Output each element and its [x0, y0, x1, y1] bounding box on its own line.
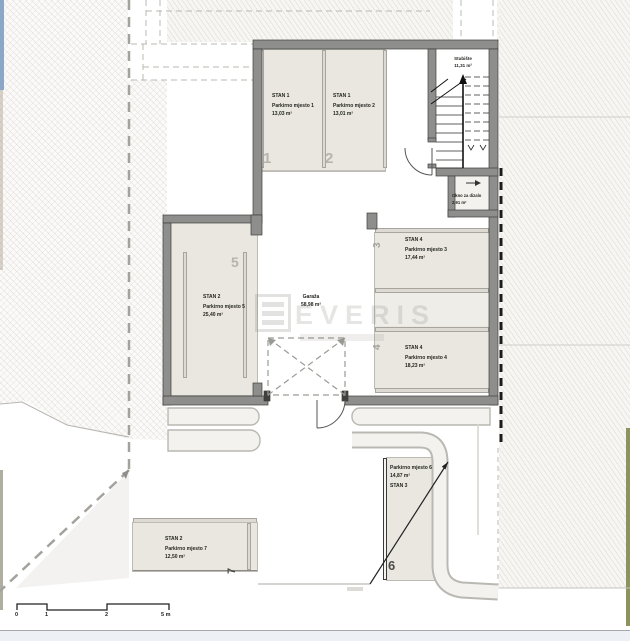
spot-area: 12,50 m² [165, 553, 207, 561]
everis-logo-icon [255, 294, 291, 332]
unit-name: STAN 4 [405, 344, 447, 352]
staircase-label: Stubište 11,31 m² [436, 55, 490, 69]
stall-number-5: 5 [231, 254, 239, 270]
spot-area: 17,44 m² [405, 254, 447, 262]
stall-number-2: 2 [325, 150, 333, 167]
garage-floor-plan: STAN 1 Parkirno mjesto 1 13,03 m² STAN 1… [0, 0, 630, 641]
elevator-arrow-icon [466, 180, 481, 186]
room-name: Stubište [436, 55, 490, 62]
scale-label-0: 0 [15, 612, 18, 618]
spot-name: Parkirno mjesto 2 [333, 102, 375, 110]
unit-name: STAN 3 [390, 482, 432, 490]
driveway-retaining-walls [168, 408, 498, 592]
room-area: 11,31 m² [436, 62, 490, 69]
unit-name: STAN 1 [333, 92, 375, 100]
spot-name: Parkirno mjesto 1 [272, 102, 314, 110]
stall-number-1: 1 [263, 150, 271, 167]
room-name: Okno za dizalo [452, 192, 481, 199]
scale-label-5m: 5 m [161, 612, 170, 618]
watermark-brand: EVERIS [295, 300, 436, 331]
elevator-label: Okno za dizalo 2,91 m² [452, 192, 481, 206]
garage-door-opening [268, 338, 345, 395]
right-region-division-lines [499, 117, 630, 588]
parking-3-label: STAN 4 Parkirno mjesto 3 17,44 m² [405, 236, 447, 262]
spot-area: 13,03 m² [272, 110, 314, 118]
scale-label-2: 2 [105, 612, 108, 618]
spot-name: Parkirno mjesto 4 [405, 354, 447, 362]
spot-name: Parkirno mjesto 6 [390, 464, 432, 472]
spot-name: Parkirno mjesto 3 [405, 246, 447, 254]
scale-label-1: 1 [45, 612, 48, 618]
room-area: 2,91 m² [452, 199, 481, 206]
spot-name: Parkirno mjesto 5 [203, 303, 245, 311]
page-bottom-strip [0, 630, 630, 641]
unit-name: STAN 4 [405, 236, 447, 244]
parking-1-label: STAN 1 Parkirno mjesto 1 13,03 m² [272, 92, 314, 118]
parking-7-label: STAN 2 Parkirno mjesto 7 12,50 m² [165, 535, 207, 561]
spot-area: 25,40 m² [203, 311, 245, 319]
scale-bar [17, 604, 169, 610]
stall-number-6: 6 [388, 558, 395, 573]
unit-name: STAN 2 [165, 535, 207, 543]
parking-2-label: STAN 1 Parkirno mjesto 2 13,01 m² [333, 92, 375, 118]
illegible-annotation [347, 587, 363, 591]
spot-name: Parkirno mjesto 7 [165, 545, 207, 553]
watermark-subtext [300, 334, 384, 341]
doors [317, 148, 432, 428]
stall-number-7: 7 [226, 560, 240, 574]
spot-area: 13,01 m² [333, 110, 375, 118]
parking-6-label: Parkirno mjesto 6 14,87 m² STAN 3 [390, 464, 432, 490]
spot-area: 18,23 m² [405, 362, 447, 370]
property-boundary-lines [0, 0, 129, 591]
unit-name: STAN 2 [203, 293, 245, 301]
parking-5-label: STAN 2 Parkirno mjesto 5 25,40 m² [203, 293, 245, 319]
staircase [431, 74, 489, 168]
parking-4-label: STAN 4 Parkirno mjesto 4 18,23 m² [405, 344, 447, 370]
stall-number-3: 3 [372, 234, 386, 248]
spot-area: 14,87 m² [390, 472, 432, 480]
unit-name: STAN 1 [272, 92, 314, 100]
walls [163, 40, 498, 405]
